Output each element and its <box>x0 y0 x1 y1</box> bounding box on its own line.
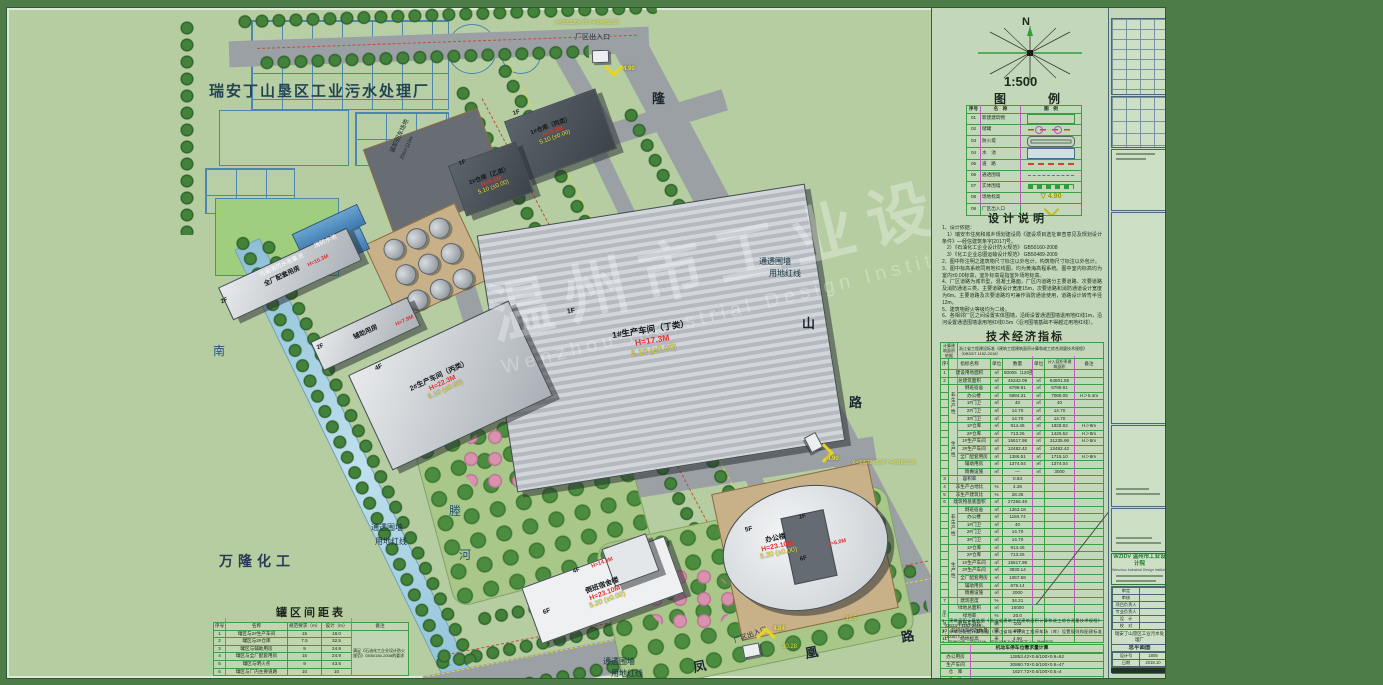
road-fenghuang-char-3: 路 <box>899 625 915 646</box>
river-char-1: 南 <box>213 342 225 359</box>
design-institute-logo: WZIDV 温州市工业设计院 <box>1112 554 1166 568</box>
fire-dike-symbol <box>1027 136 1075 147</box>
blank-box <box>1111 212 1166 424</box>
magenta-line <box>1020 105 1021 205</box>
coord-label-2: X=3057243.34 Y=494857.96 <box>852 460 916 466</box>
road-longshan-char-2: 山 <box>802 313 815 332</box>
parking-table: 办公用房12853.42×0.6/100×0.9=52生产车间30860.70×… <box>940 653 1104 679</box>
storage-tank <box>449 265 477 293</box>
magenta-line <box>970 644 971 678</box>
signature-grid <box>1111 18 1166 95</box>
spare-box <box>1111 149 1166 211</box>
tank-symbol <box>1028 125 1074 135</box>
parking-block: 机动车停车位需求量计算 办公用房12853.42×0.6/100×0.9=52生… <box>940 644 1104 679</box>
fields-table: 审定 审核 项目负责人 专业负责人 设 计 校 对 <box>1112 587 1166 630</box>
tank-spacing-block: 罐区间距表 序号名称规范要求（m）设计（m）备注1罐区与2#生产车间1518.0… <box>213 604 409 676</box>
fence-label-1: 通透围墙 <box>371 522 403 533</box>
elev-mark-top: 4.90 <box>623 66 635 72</box>
design-notes-title: 设计说明 <box>988 210 1048 226</box>
road-symbol <box>1028 163 1074 165</box>
drawing-canvas: 温州市工业设计院 Wenzhou Industrial Design Insti… <box>0 0 1383 685</box>
stamp-box-2 <box>1111 508 1166 552</box>
river-char-2: 塍 <box>449 502 461 519</box>
tank-table-title: 罐区间距表 <box>213 604 409 620</box>
magenta-line <box>351 618 352 676</box>
magenta-line <box>1032 356 1033 606</box>
certificate-bar <box>1111 668 1166 673</box>
storage-tank <box>426 276 454 304</box>
redline-label-2: 用地红线 <box>611 668 643 678</box>
tech-block: 计算建筑面积依据浙江省工程建设标准《建筑工程建筑面积计算和竣工综合测量技术规程》… <box>940 342 1104 643</box>
site-elevation-symbol: 4.90 <box>1041 194 1062 201</box>
transparent-fence-symbol <box>1028 175 1074 176</box>
dim-label-2: 39.5 <box>845 616 857 622</box>
river-char-3: 河 <box>459 546 471 563</box>
gatehouse-1 <box>592 50 609 64</box>
floors-workshop-1: 1F <box>567 307 576 315</box>
fields-box: 审定 审核 项目负责人 专业负责人 设 计 校 对 瑞安丁山垦区工业污水处理厂 … <box>1111 586 1166 668</box>
tree-row <box>178 20 195 235</box>
no-label: 设计号 <box>1113 653 1140 660</box>
design-notes: 1、设计依据： 1）瑞安市住房和城乡规划建设局《建设项目选址审查意见及规划设计条… <box>942 225 1102 325</box>
site-title: 瑞安丁山垦区工业污水处理厂 <box>209 80 430 101</box>
pool-symbol <box>1027 148 1075 159</box>
storage-tank <box>380 236 408 264</box>
scale-label: 1:500 <box>1004 74 1037 89</box>
storage-tank <box>437 240 465 268</box>
coord-label-1: X=3058204.78 Y=494655.96 <box>555 20 619 26</box>
elev-mark-right: 4.90 <box>827 456 839 462</box>
solid-fence-symbol <box>1028 184 1074 189</box>
legend-block: 序号名 称图 例01新建建筑物02储罐03防火堤04水 池05道 路06通透围墙… <box>966 105 1082 216</box>
magenta-line <box>957 356 958 606</box>
date-label: 日期 <box>1113 660 1140 667</box>
fence-label-3: 通透围墙 <box>759 256 791 267</box>
storage-tank <box>414 250 442 278</box>
redline-label-3: 用地红线 <box>769 268 801 279</box>
tank-spacing-table: 序号名称规范要求（m）设计（m）备注1罐区与2#生产车间1518.0满足《石油化… <box>213 622 409 676</box>
magenta-line <box>225 618 226 676</box>
storage-tank <box>425 214 453 242</box>
existing-basin-1 <box>219 110 349 166</box>
design-institute-logo-en: Wenzhou Industrial Design Institute <box>1112 568 1166 572</box>
site-plan: 温州市工业设计院 Wenzhou Industrial Design Insti… <box>7 8 931 678</box>
road-longshan-char-1: 隆 <box>652 88 665 107</box>
storage-tank <box>402 225 430 253</box>
project-name: 瑞安丁山垦区工业污水处理厂 <box>1112 630 1166 645</box>
redline-label-1: 用地红线 <box>375 536 407 547</box>
magenta-line <box>1074 356 1075 606</box>
info-panel: N 1:500 图 例 序号名 称图 例01新建建筑物02储罐03防火堤04水 … <box>931 8 1109 678</box>
drawing-name: 总平面图 <box>1112 645 1166 652</box>
drawing-sheet: 温州市工业设计院 Wenzhou Industrial Design Insti… <box>6 7 1166 679</box>
road-longshan-char-3: 路 <box>849 392 862 411</box>
neighbor-label: 万隆化工 <box>219 551 295 571</box>
dim-label-1: 30.28 <box>782 644 797 650</box>
legend-table: 序号名 称图 例01新建建筑物02储罐03防火堤04水 池05道 路06通透围墙… <box>966 105 1082 216</box>
entrance-label-top: 厂区出入口 <box>575 32 610 42</box>
date-value: 2018.10 <box>1140 660 1167 667</box>
title-block: WZIDV 温州市工业设计院 Wenzhou Industrial Design… <box>1108 8 1166 678</box>
magenta-line <box>980 105 981 205</box>
stamp-box-1 <box>1111 425 1166 507</box>
no-value: 1805 <box>1140 653 1167 660</box>
new-building-symbol <box>1027 114 1075 124</box>
tech-table: 计算建筑面积依据浙江省工程建设标准《建筑工程建筑面积计算和竣工综合测量技术规程》… <box>940 342 1104 643</box>
elev-mark-bottom: 4.84 <box>773 626 785 632</box>
revision-grid <box>1111 96 1166 148</box>
tech-notes: 注：1、建筑面积计算依据《浙江省建筑工程建筑面积计算和竣工综合测量技术规程》（D… <box>942 612 1102 642</box>
parking-title: 机动车停车位需求量计算 <box>940 644 1104 653</box>
storage-tank <box>391 261 419 289</box>
logo-box: WZIDV 温州市工业设计院 Wenzhou Industrial Design… <box>1111 553 1166 585</box>
fence-label-2: 通透围墙 <box>603 656 635 667</box>
